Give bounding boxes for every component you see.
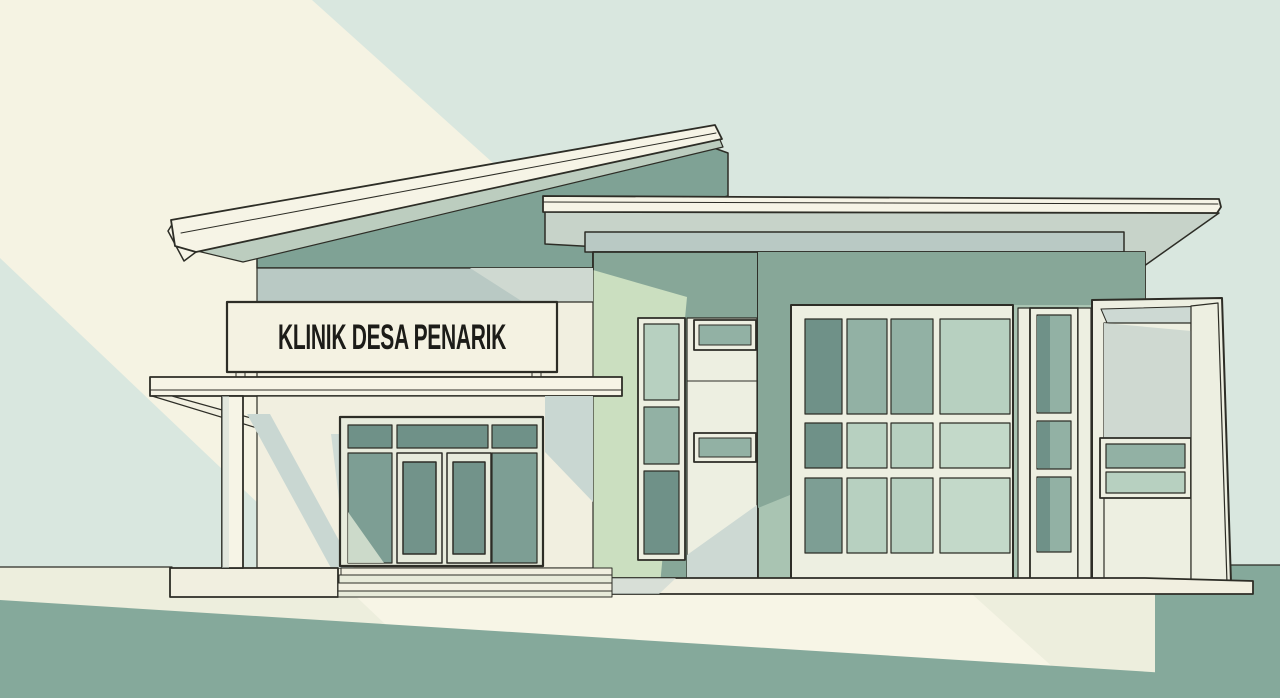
portal-louver-glass-bottom: [1106, 472, 1185, 493]
tall-window-pane-middle: [644, 407, 679, 464]
transom-pane: [492, 425, 537, 448]
step: [341, 568, 612, 575]
transom-pane: [397, 425, 488, 448]
window-pane: [847, 478, 887, 553]
sidelight-right: [492, 453, 537, 563]
portal-louver-glass-top: [1106, 444, 1185, 468]
step: [339, 575, 612, 583]
window-pane: [891, 423, 933, 468]
step: [338, 583, 612, 591]
window-pilaster: [1078, 308, 1091, 583]
portal-inner-shadow: [1104, 323, 1191, 440]
window-pilaster: [1018, 308, 1030, 583]
illustration-canvas: KLINIK DESA PENARIK: [0, 0, 1280, 698]
narrow-window: [1018, 308, 1091, 583]
entrance-steps: [338, 568, 612, 597]
window-pane: [847, 423, 887, 468]
canopy-post-shading: [222, 396, 229, 568]
window-pane: [805, 478, 842, 553]
door-glass-right: [453, 462, 485, 554]
clinic-sign: KLINIK DESA PENARIK: [227, 302, 557, 378]
big-window: [791, 305, 1013, 583]
window-pane: [940, 478, 1010, 553]
window-pane: [847, 319, 887, 414]
entrance-doors: [340, 417, 543, 566]
right-roof-fascia: [543, 196, 1221, 213]
tall-window-pane-top: [644, 324, 679, 400]
window-pane: [940, 319, 1010, 414]
narrow-pane-shadow: [1037, 316, 1050, 412]
window-pane: [891, 319, 933, 414]
step: [338, 591, 612, 597]
right-base-plinth: [598, 578, 1253, 594]
louver-window-bottom-glass: [699, 438, 751, 457]
transom-pane: [348, 425, 392, 448]
clinic-sign-text: KLINIK DESA PENARIK: [278, 318, 506, 357]
clinic-illustration: KLINIK DESA PENARIK: [0, 0, 1280, 698]
narrow-pane-shadow: [1037, 478, 1050, 551]
window-pane: [805, 319, 842, 414]
door-glass-left: [403, 462, 436, 554]
parapet-band: [585, 232, 1124, 252]
left-plinth: [170, 568, 338, 597]
louver-window-top-glass: [699, 325, 751, 345]
right-portal: [1092, 298, 1231, 583]
middle-section: [593, 252, 758, 585]
entrance-canopy: [150, 377, 622, 396]
tall-window-pane-bottom: [644, 471, 679, 554]
window-pane: [891, 478, 933, 553]
window-pane: [805, 423, 842, 468]
narrow-pane-shadow: [1037, 422, 1050, 468]
window-pane: [940, 423, 1010, 468]
